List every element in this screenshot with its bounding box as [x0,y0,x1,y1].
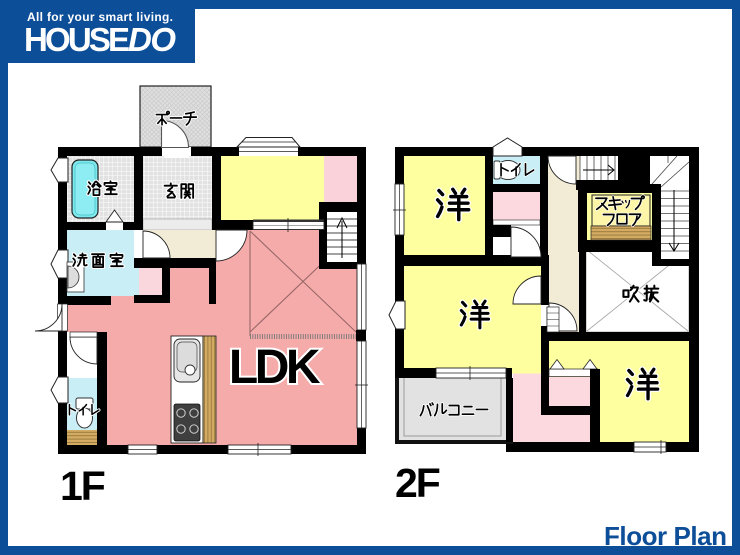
svg-text:Floor Plan: Floor Plan [604,521,727,551]
svg-text:HOUSE: HOUSE [24,21,130,58]
svg-text:1F: 1F [60,463,105,509]
svg-text:DO: DO [128,21,176,58]
svg-text:2F: 2F [395,460,440,506]
svg-text:LDK: LDK [229,341,321,394]
